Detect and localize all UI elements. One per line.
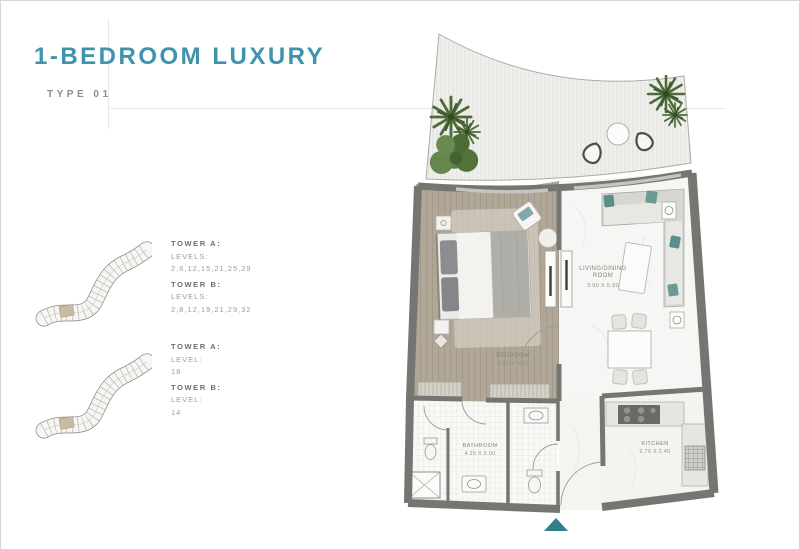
tower-a-label: TOWER A:: [171, 341, 301, 354]
floorplan-svg: BEDROOM 3.80 X 5.00 LIVING/DINING ROOM 3…: [396, 26, 726, 536]
tower-b-level-value: 14: [171, 407, 301, 420]
brochure-page: 1-BEDROOM LUXURY TYPE 01 TOWER A: LEVELS…: [0, 0, 800, 550]
wc-toilet: [527, 470, 542, 493]
page-title: 1-BEDROOM LUXURY: [34, 43, 325, 71]
bathroom-dims: 4.20 X 2.00: [465, 451, 496, 457]
tower-a-levels-values: 2,6,12,15,21,25,29: [171, 263, 301, 276]
tower-b-label: TOWER B:: [171, 382, 301, 395]
kitchen-label: KITCHEN: [641, 441, 668, 447]
side-table-top: [662, 202, 676, 219]
kitchen-sink: [685, 446, 705, 470]
wc-basin: [524, 408, 548, 423]
tower-b-level-label: LEVEL:: [171, 394, 301, 407]
keyplan-thumbnail-2: [34, 344, 152, 442]
kitchen-dims: 2.70 X 2.40: [640, 449, 671, 455]
tower-levels-block-2: TOWER A: LEVEL: 18 TOWER B: LEVEL: 14: [171, 341, 301, 419]
living-label-2: ROOM: [593, 273, 613, 279]
side-table-bottom: [670, 312, 684, 328]
vertical-guide-line: [108, 19, 109, 129]
entrance-arrow-icon: [544, 518, 568, 531]
bedroom-label: BEDROOM: [496, 353, 530, 359]
bed: [436, 230, 531, 319]
tower-b-label: TOWER B:: [171, 279, 301, 292]
toilet: [424, 438, 437, 460]
nightstand-bottom: [434, 320, 449, 334]
tower-a-level-label: LEVEL:: [171, 354, 301, 367]
tower-b-levels-label: LEVELS:: [171, 291, 301, 304]
bedroom-dims: 3.80 X 5.00: [497, 361, 529, 367]
stove: [618, 405, 660, 424]
living-dims: 3.90 X 5.90: [587, 283, 619, 289]
pouf: [539, 229, 558, 248]
keyplan-thumbnail-1: [34, 232, 152, 330]
vanity-sink: [462, 476, 486, 492]
page-subtitle: TYPE 01: [47, 89, 112, 100]
tower-a-level-value: 18: [171, 366, 301, 379]
bathroom-label: BATHROOM: [462, 443, 497, 449]
tower-levels-block-1: TOWER A: LEVELS: 2,6,12,15,21,25,29 TOWE…: [171, 238, 301, 316]
nightstand-top: [436, 216, 451, 230]
living-label-1: LIVING/DINING: [579, 266, 627, 272]
tower-a-levels-label: LEVELS:: [171, 251, 301, 264]
tower-b-levels-values: 2,8,12,19,21,29,32: [171, 304, 301, 317]
tower-a-label: TOWER A:: [171, 238, 301, 251]
